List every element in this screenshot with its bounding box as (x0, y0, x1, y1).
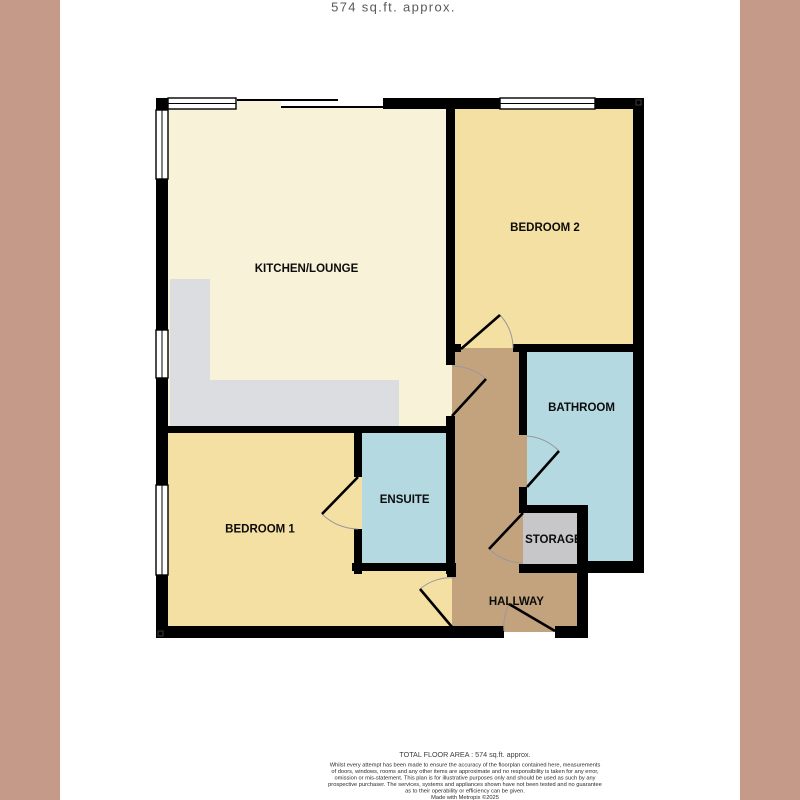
svg-text:prospective purchaser. The ser: prospective purchaser. The services, sys… (328, 782, 602, 788)
svg-text:Made with Metropix ©2025: Made with Metropix ©2025 (431, 794, 499, 800)
svg-text:of doors, windows, rooms and a: of doors, windows, rooms and any other i… (331, 769, 599, 775)
svg-text:STORAGE: STORAGE (525, 534, 582, 546)
svg-text:ENSUITE: ENSUITE (380, 494, 430, 506)
svg-text:BEDROOM 1: BEDROOM 1 (225, 524, 295, 536)
svg-text:HALLWAY: HALLWAY (489, 596, 544, 608)
svg-text:574 sq.ft. approx.: 574 sq.ft. approx. (331, 0, 456, 15)
svg-text:TOTAL FLOOR AREA : 574 sq.ft.: TOTAL FLOOR AREA : 574 sq.ft. approx. (399, 750, 530, 759)
svg-text:KITCHEN/LOUNGE: KITCHEN/LOUNGE (255, 263, 359, 275)
svg-text:BATHROOM: BATHROOM (548, 402, 615, 414)
svg-text:BEDROOM 2: BEDROOM 2 (510, 222, 580, 234)
svg-text:Whilst every attempt has been: Whilst every attempt has been made to en… (330, 763, 601, 769)
svg-text:as to their operability or eff: as to their operability or efficiency ca… (405, 789, 525, 795)
svg-text:omission or mis-statement. Thi: omission or mis-statement. This plan is … (334, 776, 595, 782)
